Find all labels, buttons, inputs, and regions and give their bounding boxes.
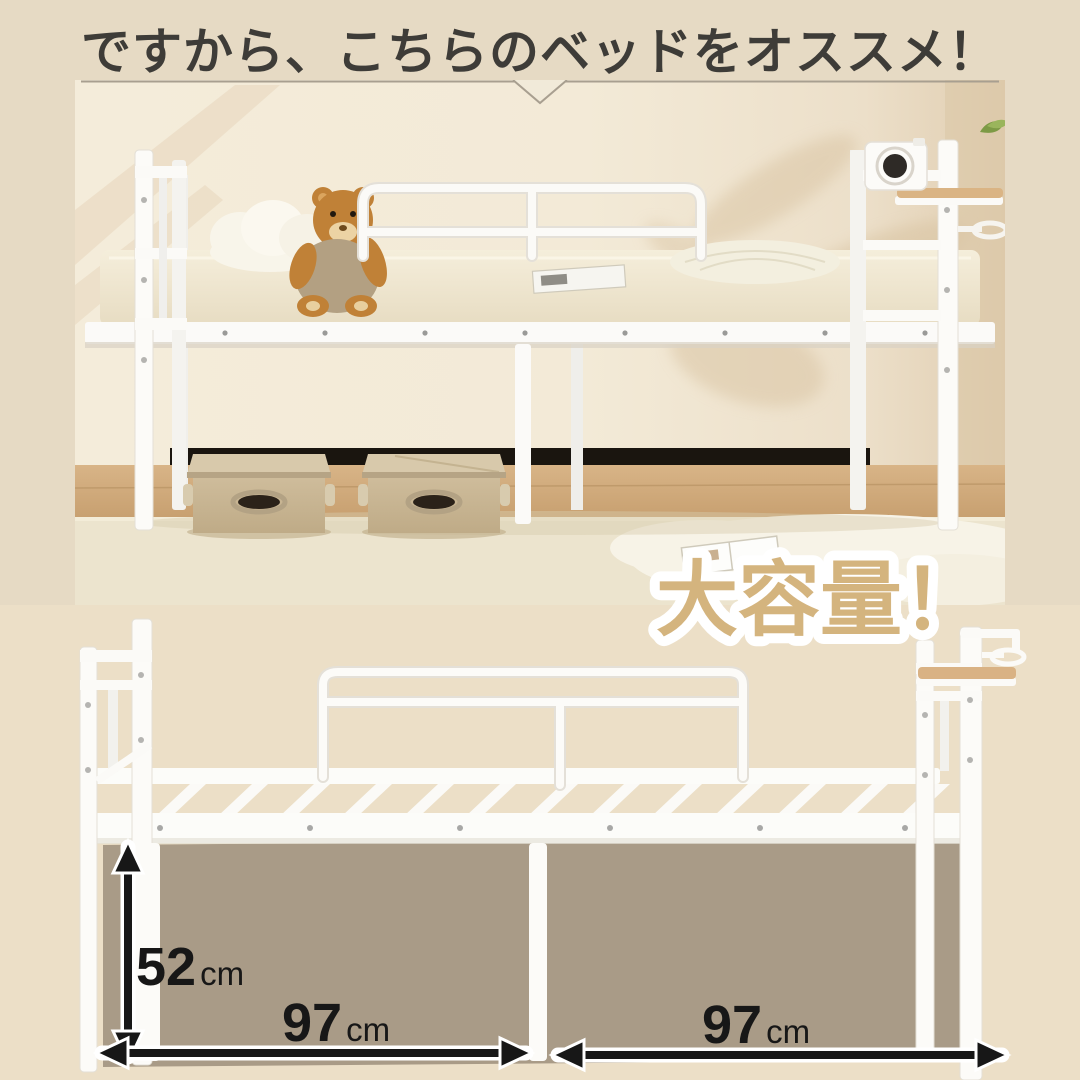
back-rail: [95, 768, 940, 784]
bedroom-photo: [75, 80, 1005, 605]
product-infographic: ですから、こちらのベッドをオススメ！: [0, 0, 1080, 1080]
dimension-diagram: 52cm 97cm 97cm: [0, 605, 1080, 1080]
wooden-shelf: [916, 667, 1016, 686]
bed-leg: [515, 344, 531, 524]
bed-leg: [529, 843, 547, 1061]
retro-camera: [865, 138, 927, 190]
bed-leg: [571, 344, 583, 510]
capacity-badge: 大容量！: [645, 538, 995, 658]
storage-box-left: [183, 454, 335, 539]
page-title: ですから、こちらのベッドをオススメ！: [0, 12, 1080, 84]
storage-box-right: [358, 454, 510, 539]
capacity-badge-text: 大容量！: [656, 555, 984, 646]
